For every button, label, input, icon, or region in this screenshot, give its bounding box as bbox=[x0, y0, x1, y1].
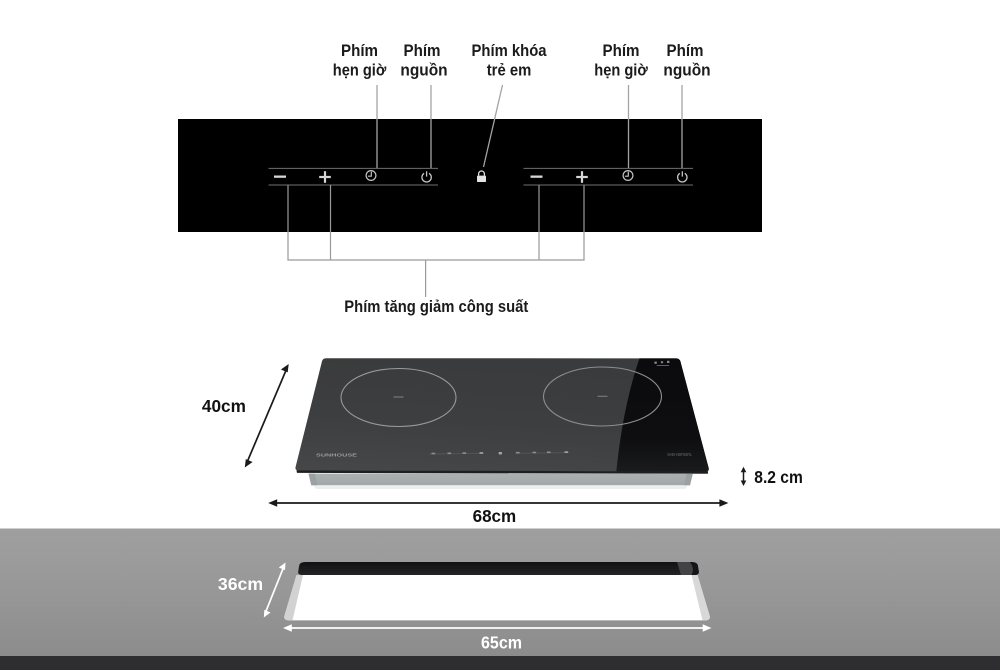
svg-text:Phím: Phím bbox=[603, 42, 640, 60]
svg-text:nguồn: nguồn bbox=[663, 61, 710, 79]
svg-text:68cm: 68cm bbox=[473, 506, 517, 526]
svg-text:SHB-HBF55R1: SHB-HBF55R1 bbox=[667, 452, 693, 457]
svg-text:Phím: Phím bbox=[341, 42, 378, 60]
svg-text:Phím khóa: Phím khóa bbox=[472, 42, 548, 60]
svg-text:Phím: Phím bbox=[667, 42, 704, 60]
svg-text:trẻ em: trẻ em bbox=[487, 61, 532, 79]
svg-text:hẹn giờ: hẹn giờ bbox=[333, 61, 387, 79]
svg-text:65cm: 65cm bbox=[481, 633, 522, 653]
svg-text:8.2 cm: 8.2 cm bbox=[754, 467, 803, 487]
svg-text:Phím: Phím bbox=[404, 42, 441, 60]
svg-text:36cm: 36cm bbox=[218, 574, 263, 594]
svg-text:hẹn giờ: hẹn giờ bbox=[594, 61, 648, 79]
svg-text:40cm: 40cm bbox=[202, 396, 246, 416]
svg-text:Phím tăng giảm công suất: Phím tăng giảm công suất bbox=[344, 298, 528, 316]
svg-text:SUNHOUSE: SUNHOUSE bbox=[316, 453, 357, 458]
svg-text:nguồn: nguồn bbox=[400, 61, 447, 79]
